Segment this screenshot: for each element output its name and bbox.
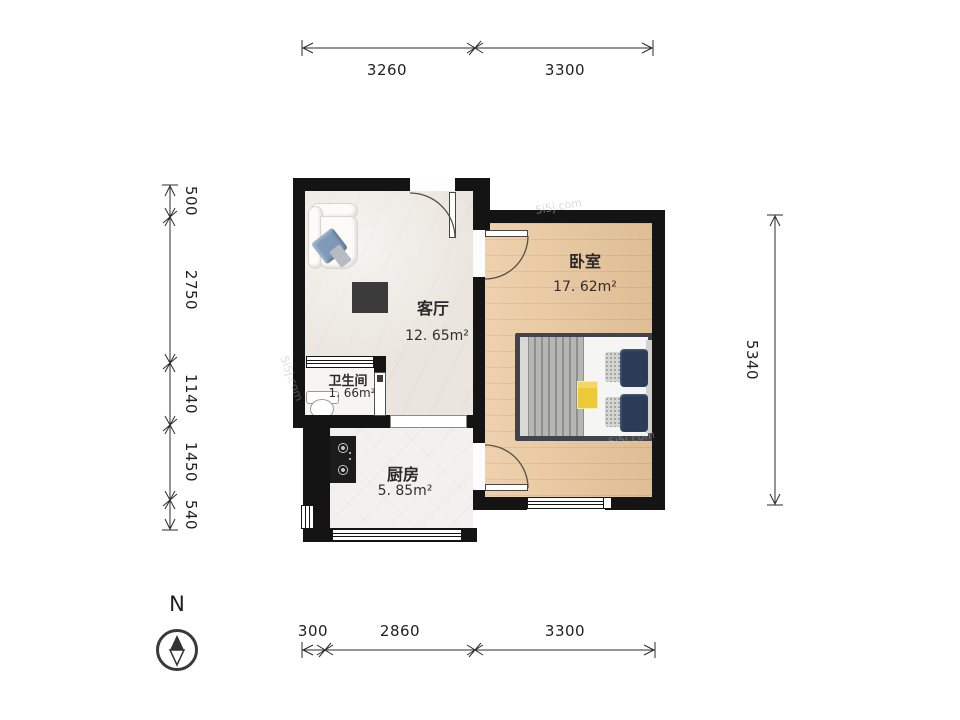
dim-top-2: 3300 bbox=[520, 61, 610, 79]
bedroom-name-label: 卧室 bbox=[505, 248, 665, 272]
kitchen-area-label: 5. 85m² bbox=[345, 483, 465, 499]
dim-bottom-3: 3300 bbox=[520, 622, 610, 640]
bedroom-area-label: 17. 62m² bbox=[505, 279, 665, 295]
dim-left-2: 2750 bbox=[182, 245, 200, 335]
compass-needle-icon bbox=[159, 632, 195, 668]
dim-left-5: 540 bbox=[182, 470, 200, 560]
dim-bottom-2: 2860 bbox=[355, 622, 445, 640]
dim-left-1: 500 bbox=[182, 156, 200, 246]
dim-bottom-1: 300 bbox=[288, 622, 338, 640]
dim-top-1: 3260 bbox=[342, 61, 432, 79]
dimension-lines bbox=[162, 40, 783, 658]
living-room-area-label: 12. 65m² bbox=[377, 328, 497, 344]
living-room-name-label: 客厅 bbox=[383, 295, 483, 319]
kitchen-name-label: 厨房 bbox=[353, 461, 453, 485]
linework-layer bbox=[0, 0, 960, 720]
compass-circle bbox=[156, 629, 198, 671]
compass-north-label: N bbox=[157, 592, 197, 616]
dim-right-1: 5340 bbox=[743, 315, 761, 405]
floorplan-canvas: 卧室 17. 62m² 客厅 12. 65m² 卫生间 1. 66m² 厨房 5… bbox=[0, 0, 960, 720]
bathroom-area-label: 1. 66m² bbox=[312, 386, 392, 400]
